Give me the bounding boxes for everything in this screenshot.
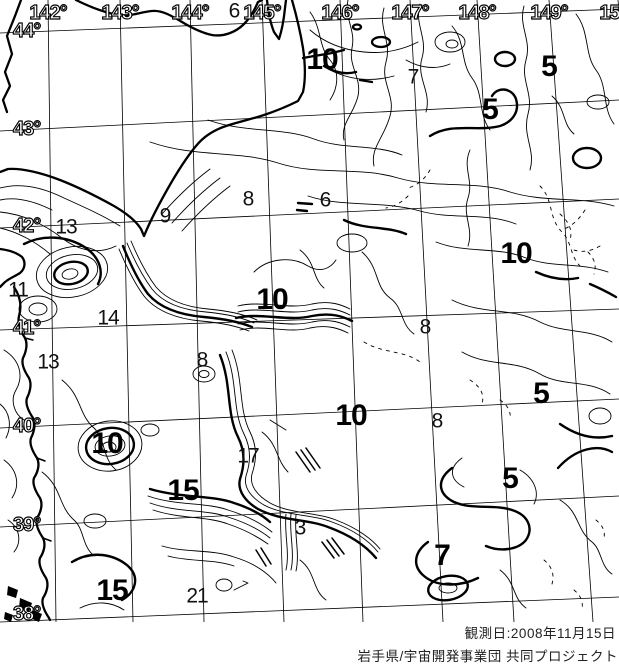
isotherm-value-label-6-6: 6: [320, 190, 331, 211]
isotherm-value-label-14-11: 14: [97, 308, 118, 329]
sst-contour-map-page: 142°143°144°145°146°147°148°149°150°44°4…: [0, 0, 619, 668]
isotherm-value-label-5-4: 5: [482, 95, 498, 125]
isotherm-value-label-13-14: 13: [37, 352, 58, 373]
isotherm-value-label-11-9: 11: [8, 280, 28, 301]
longitude-label-148°: 148°: [450, 3, 504, 23]
map-label-layer: 142°143°144°145°146°147°148°149°150°44°4…: [0, 0, 619, 668]
longitude-label-147°: 147°: [383, 3, 437, 23]
isotherm-value-label-5-3: 5: [541, 52, 557, 82]
longitude-label-144°: 144°: [163, 3, 217, 23]
isotherm-value-label-10-10: 10: [500, 239, 531, 269]
isotherm-value-label-10-1: 10: [306, 45, 337, 75]
isotherm-value-label-8-15: 8: [197, 350, 208, 371]
longitude-label-143°: 143°: [93, 3, 147, 23]
isotherm-value-label-3-23: 3: [295, 518, 306, 539]
longitude-label-146°: 146°: [313, 3, 367, 23]
latitude-label-38°: 38°: [13, 604, 40, 624]
isotherm-value-label-7-24: 7: [434, 541, 450, 571]
latitude-label-43°: 43°: [13, 119, 40, 139]
longitude-label-149°: 149°: [522, 3, 576, 23]
isotherm-value-label-15-22: 15: [167, 476, 198, 506]
isotherm-value-label-9-7: 9: [160, 206, 171, 227]
longitude-label-145°: 145°: [235, 3, 289, 23]
isotherm-value-label-10-19: 10: [91, 429, 122, 459]
isotherm-value-label-6-0: 6: [229, 1, 240, 22]
latitude-label-41°: 41°: [13, 318, 40, 338]
latitude-label-39°: 39°: [13, 515, 40, 535]
latitude-label-42°: 42°: [13, 216, 40, 236]
isotherm-value-label-7-2: 7: [408, 67, 419, 88]
isotherm-value-label-15-25: 15: [96, 576, 127, 606]
isotherm-value-label-5-21: 5: [502, 464, 518, 494]
latitude-label-44°: 44°: [13, 21, 40, 41]
isotherm-value-label-5-16: 5: [533, 379, 549, 409]
observation-date-caption: 観測日:2008年11月15日: [465, 627, 616, 641]
isotherm-value-label-8-5: 8: [243, 189, 254, 210]
isotherm-value-label-10-17: 10: [335, 401, 366, 431]
longitude-label-150°: 150°: [591, 3, 619, 23]
project-credit-caption: 岩手県/宇宙開発事業団 共同プロジェクト: [357, 650, 618, 664]
isotherm-value-label-8-18: 8: [432, 411, 443, 432]
isotherm-value-label-8-13: 8: [420, 317, 431, 338]
isotherm-value-label-17-20: 17: [237, 446, 258, 467]
isotherm-value-label-10-12: 10: [256, 285, 287, 315]
isotherm-value-label-21-26: 21: [186, 586, 207, 607]
latitude-label-40°: 40°: [13, 416, 40, 436]
isotherm-value-label-13-8: 13: [55, 217, 76, 238]
